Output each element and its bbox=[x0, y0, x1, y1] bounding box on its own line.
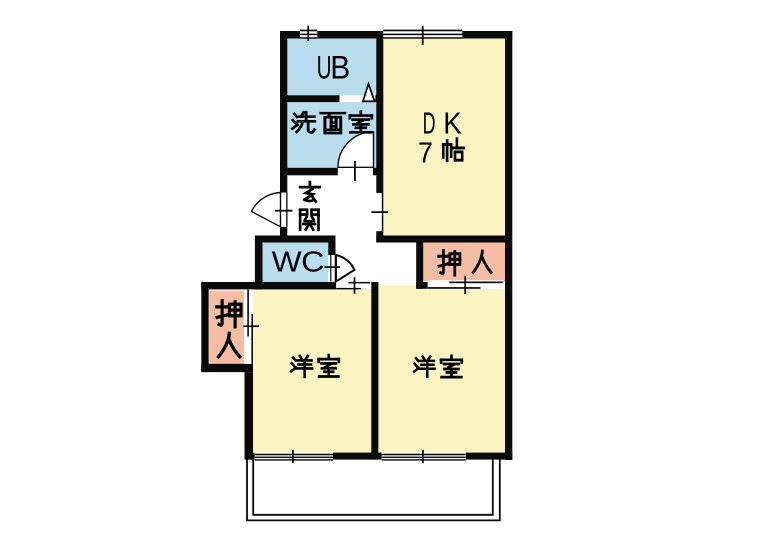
svg-text:C: C bbox=[301, 247, 324, 279]
svg-text:7: 7 bbox=[418, 137, 433, 169]
svg-text:W: W bbox=[272, 247, 303, 279]
svg-text:B: B bbox=[330, 50, 350, 86]
svg-text:K: K bbox=[443, 107, 462, 141]
svg-text:D: D bbox=[423, 107, 436, 141]
